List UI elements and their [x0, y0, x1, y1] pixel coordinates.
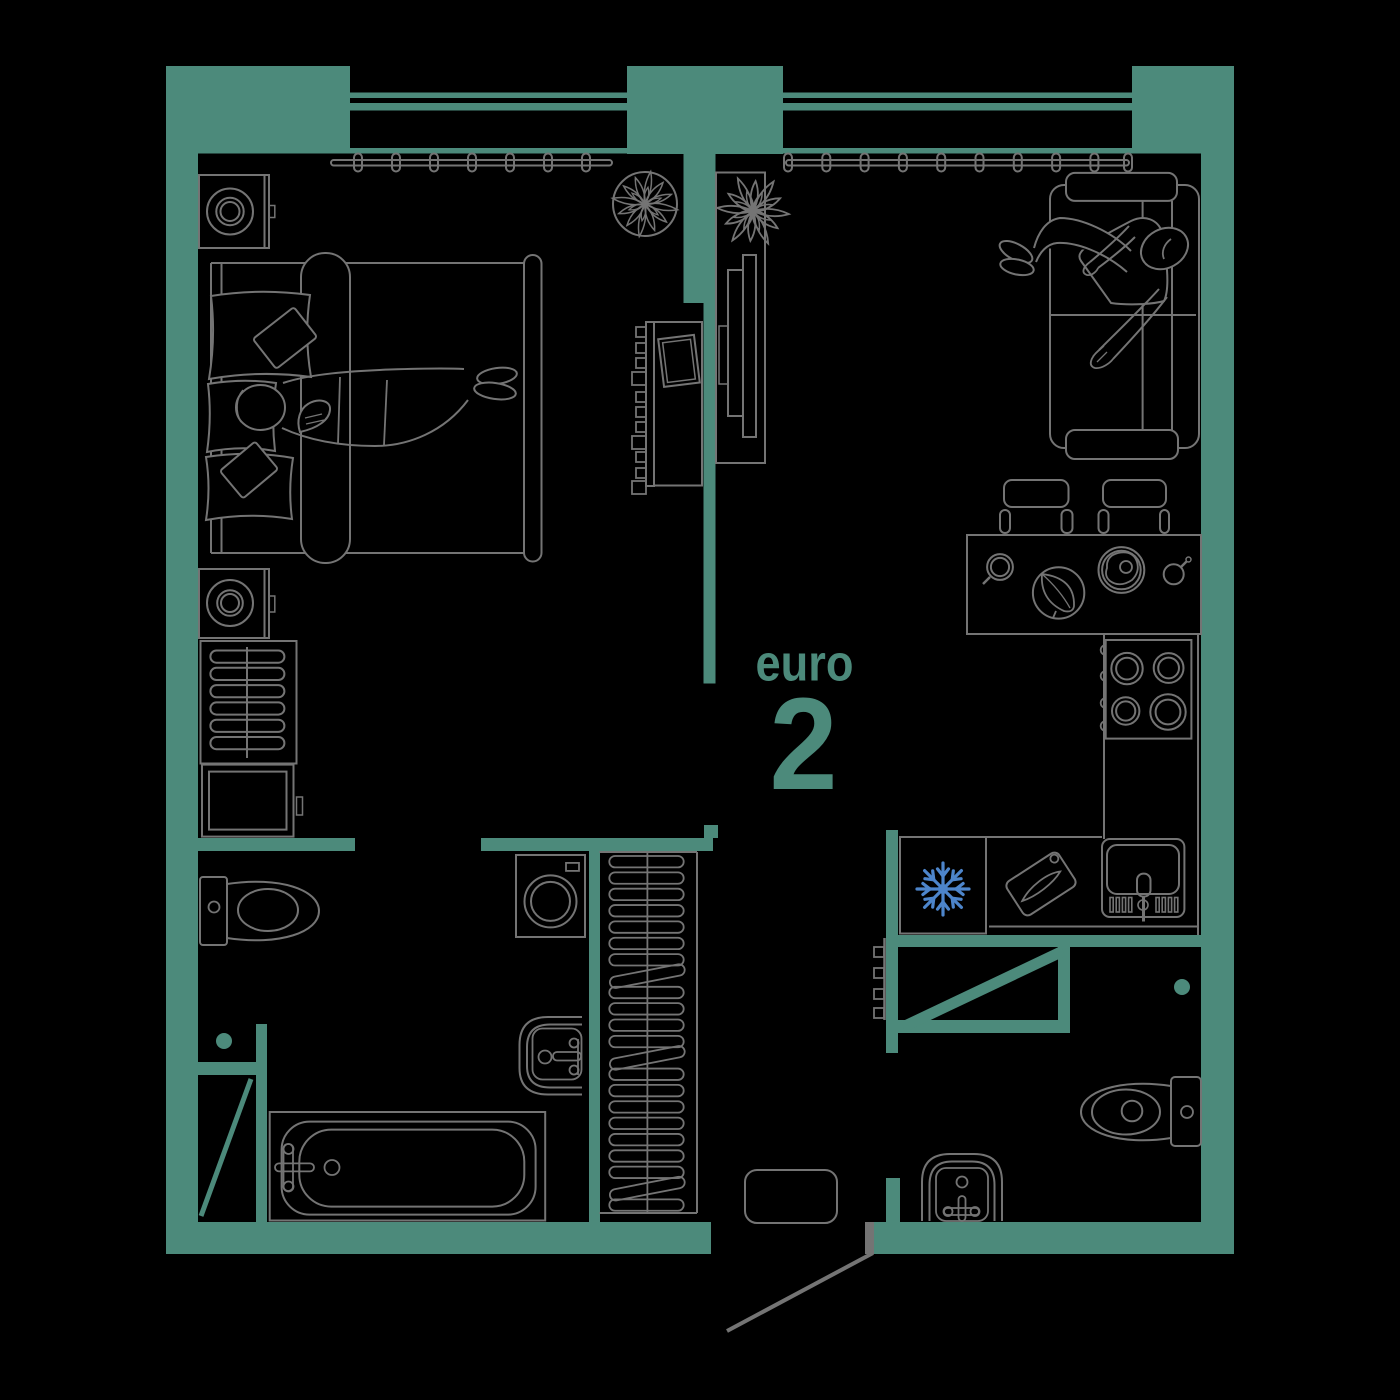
svg-text:2: 2 [770, 670, 838, 817]
